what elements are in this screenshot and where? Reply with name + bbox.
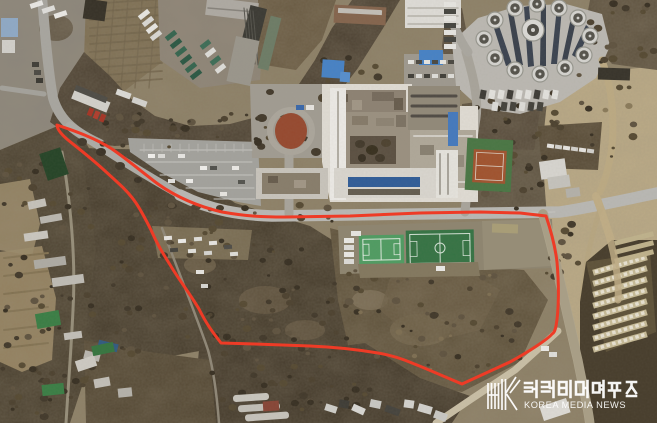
svg-text:KOREA MEDIA NEWS: KOREA MEDIA NEWS [524, 400, 626, 410]
